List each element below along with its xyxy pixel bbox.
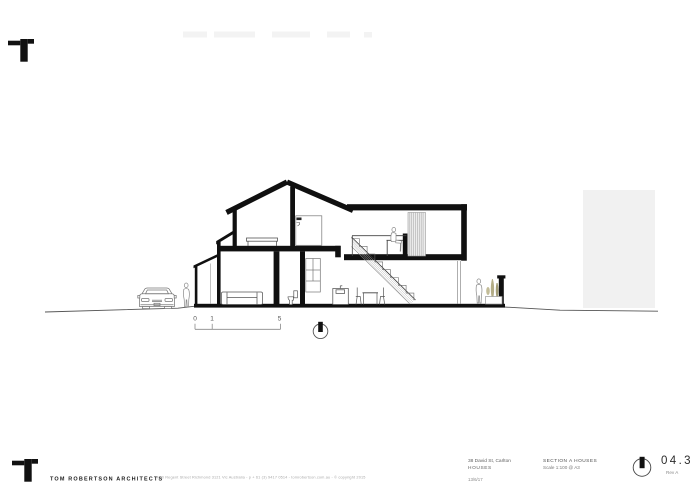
- shelving: [306, 259, 321, 293]
- slat-screen: [408, 213, 426, 257]
- ff-mid-wall: [290, 187, 295, 247]
- scale-label-1: 1: [210, 316, 214, 323]
- faint-header-marks: [183, 32, 372, 38]
- project-name: HOUSES: [468, 465, 492, 471]
- leanto-roof: [194, 253, 220, 268]
- drawing-date: 13/6/17: [468, 477, 483, 482]
- ff-slab-right: [344, 254, 462, 260]
- project-address: 38 David St, Carlton: [468, 458, 511, 464]
- person-seated-desk: [391, 227, 402, 251]
- scale-label-5: 5: [278, 316, 282, 323]
- sheet-number: 04.3: [661, 455, 693, 467]
- north-marker-icon: [313, 322, 328, 339]
- wardrobe: [296, 216, 322, 246]
- firm-details: 4/40 Regent Street Richmond 3121 Vic Aus…: [156, 475, 366, 479]
- logo-mark-footer: [12, 459, 38, 482]
- firm-name: TOM ROBERTSON ARCHITECTS: [50, 476, 163, 482]
- scale-label-0: 0: [193, 316, 197, 323]
- titleblock-north-icon: [633, 457, 651, 477]
- sheet-revision: Rev A: [666, 470, 678, 475]
- car: [138, 288, 176, 309]
- person-courtyard: [476, 279, 482, 303]
- house-section: [194, 182, 506, 308]
- section-drawing: 0 1 5: [0, 0, 700, 495]
- sofa: [222, 292, 263, 305]
- ff-left-wall: [233, 208, 237, 249]
- flat-roof: [347, 204, 467, 210]
- slab-step-block: [335, 246, 341, 257]
- bed: [247, 238, 278, 246]
- kitchen-bench: [333, 286, 349, 305]
- logo-mark-top: [8, 39, 34, 62]
- study-joinery: [403, 234, 408, 258]
- low-slope-roof: [216, 230, 234, 244]
- neighbor-building: [583, 190, 655, 308]
- gf-wall-a: [274, 251, 280, 304]
- upper-right-wall: [461, 204, 467, 261]
- person-standing-left: [183, 283, 189, 307]
- toilet: [288, 291, 297, 305]
- courtyard-wall-cap: [497, 275, 505, 278]
- gable-roof-left: [227, 182, 288, 213]
- gf-wall-b: [300, 251, 305, 304]
- drawing-scale: Scale 1:100 @ A3: [543, 465, 580, 470]
- drawing-title: SECTION A HOUSES: [543, 458, 597, 464]
- drawing-sheet: 0 1 5 TOM ROBERTSON ARCHITECTS 4/40 Re: [0, 0, 700, 495]
- dining-set: [356, 288, 385, 305]
- leanto-left-wall: [195, 266, 198, 304]
- scale-bar: 0 1 5: [193, 316, 282, 330]
- gable-roof-right: [287, 182, 353, 211]
- ff-slab-left: [217, 246, 341, 252]
